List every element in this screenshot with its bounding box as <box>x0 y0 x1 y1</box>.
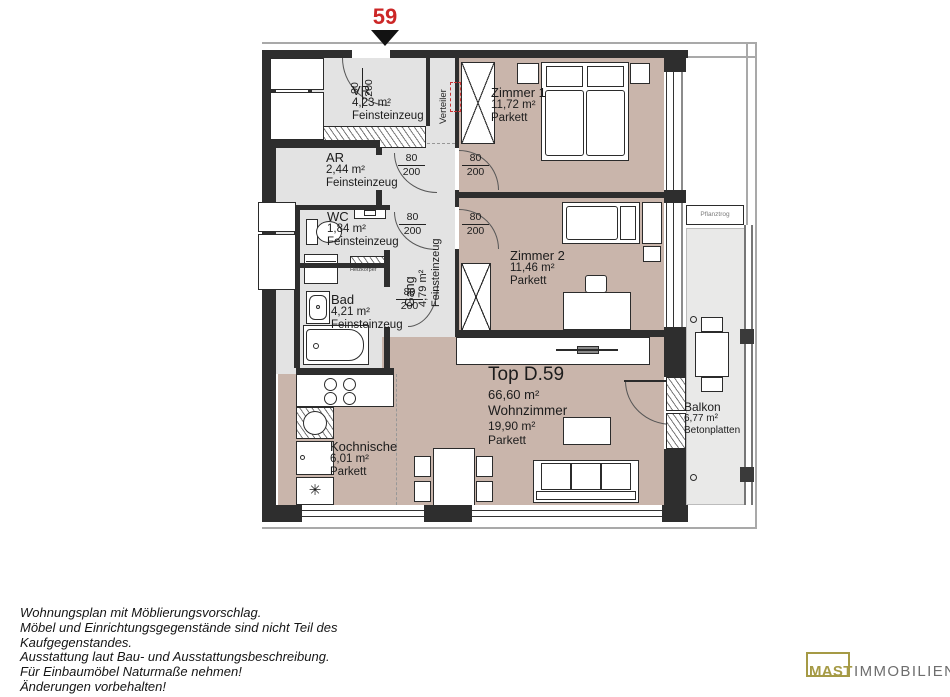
door-height: 200 <box>396 299 423 313</box>
room-area: 19,90 m² <box>488 419 567 433</box>
desk <box>563 292 631 330</box>
door-dim-wc: 80 200 <box>399 211 426 237</box>
sofa-cushion <box>601 463 631 490</box>
cooktop-burner <box>343 392 356 405</box>
door-height: 200 <box>399 224 426 238</box>
shaft-box <box>270 58 324 90</box>
room-floor: Parkett <box>510 275 565 288</box>
floorplan-canvas: 59 <box>0 0 950 697</box>
room-area: 4,21 m² <box>331 306 403 319</box>
washing-machine <box>304 254 338 284</box>
door-height: 200 <box>398 165 425 179</box>
room-floor: Parkett <box>488 433 567 447</box>
cooktop-burner <box>324 392 337 405</box>
wall <box>296 368 394 374</box>
wardrobe <box>461 263 491 331</box>
window-wohnzimmer-left <box>302 510 424 517</box>
window-outer-line <box>681 203 683 327</box>
logo-secondary-text: IMMOBILIEN <box>854 663 950 680</box>
room-name: Bad <box>331 293 403 306</box>
balcony-drain <box>690 474 697 481</box>
door-width: 90 <box>349 68 362 108</box>
balcony-door-threshold <box>666 377 686 411</box>
facade-line <box>686 56 756 58</box>
facade-line <box>262 42 756 44</box>
label-heizkoerper: Heizkörper <box>350 267 377 273</box>
unit-top-label: Top D.59 <box>488 363 567 386</box>
freezer-symbol: ✳ <box>309 482 322 499</box>
room-floor: Feinsteinzeug <box>352 110 424 123</box>
wall <box>390 50 688 58</box>
sink-basin <box>303 411 327 435</box>
washing-machine-line <box>306 261 336 262</box>
sofa-cushion <box>571 463 601 490</box>
fridge-handle <box>300 455 305 460</box>
room-name: Zimmer 1 <box>491 86 546 99</box>
shaft-box <box>270 92 324 140</box>
label-ar: AR 2,44 m² Feinsteinzeug <box>326 151 398 190</box>
balcony-table <box>695 332 729 377</box>
railing-line <box>744 225 746 505</box>
wardrobe <box>461 62 495 144</box>
wall <box>455 249 459 337</box>
label-bad: Bad 4,21 m² Feinsteinzeug <box>331 293 403 332</box>
freezer: ✳ <box>296 477 334 505</box>
door-width: 80 <box>462 152 489 165</box>
room-floor: Feinsteinzeug <box>326 177 398 190</box>
door-dim-ar: 80 200 <box>398 152 425 178</box>
room-area: 11,46 m² <box>510 262 565 275</box>
room-area: 11,72 m² <box>491 99 546 112</box>
chair <box>414 456 431 477</box>
chair <box>476 456 493 477</box>
room-floor: Parkett <box>491 112 546 125</box>
room-area: 6,77 m² <box>684 413 740 425</box>
room-name: Balkon <box>684 401 740 413</box>
chair <box>414 481 431 502</box>
door-height: 200 <box>462 165 489 179</box>
pillow <box>620 206 636 240</box>
railing-post <box>740 329 754 344</box>
pillow <box>546 66 583 87</box>
tv-line <box>556 349 618 351</box>
door-height: 200 <box>462 224 489 238</box>
label-zimmer1: Zimmer 1 11,72 m² Parkett <box>491 86 546 125</box>
desk-chair <box>585 275 607 293</box>
label-wc: WC 1,84 m² Feinsteinzeug <box>327 210 399 249</box>
footer-line: Wohnungsplan mit Möblierungsvorschlag. <box>20 606 338 621</box>
nightstand <box>630 63 650 84</box>
footer-line: Änderungen vorbehalten! <box>20 680 338 695</box>
balcony-chair <box>701 377 723 392</box>
wall <box>384 327 390 368</box>
wall <box>424 505 472 522</box>
label-zimmer2: Zimmer 2 11,46 m² Parkett <box>510 249 565 288</box>
entrance-arrow-icon <box>371 30 399 46</box>
room-area: 6,01 m² <box>330 453 397 466</box>
label-wohnzimmer: Top D.59 66,60 m² Wohnzimmer 19,90 m² Pa… <box>488 363 567 447</box>
room-floor: Feinsteinzeug <box>331 319 403 332</box>
room-name: WC <box>327 210 399 223</box>
label-verteiler: Verteiler <box>438 74 449 124</box>
sofa-backrest <box>536 491 636 500</box>
sofa-cushion <box>541 463 571 490</box>
window-zimmer1 <box>666 72 674 190</box>
room-floor: Parkett <box>330 466 397 479</box>
unit-total-area: 66,60 m² <box>488 386 567 403</box>
facade-line <box>262 527 757 529</box>
wall <box>662 505 688 522</box>
railing-line <box>751 225 753 505</box>
door-dim-zimmer2: 80 200 <box>462 211 489 237</box>
window-zimmer2 <box>666 203 674 327</box>
balcony-door-threshold <box>666 413 686 449</box>
cooktop-burner <box>324 378 337 391</box>
nightstand <box>517 63 539 84</box>
shelf <box>642 202 662 244</box>
facade-line <box>746 42 748 225</box>
window-outer-line <box>681 72 683 190</box>
door-dim-bad: 80 200 <box>396 286 423 312</box>
footer-line: Für Einbaumöbel Naturmaße nehmen! <box>20 665 338 680</box>
label-kochnische: Kochnische 6,01 m² Parkett <box>330 440 397 479</box>
footer-line: Ausstattung laut Bau- und Ausstattungsbe… <box>20 650 338 665</box>
railing-post <box>740 467 754 482</box>
door-height: 200 <box>362 68 376 108</box>
logo-primary-text: MAST <box>809 663 853 680</box>
wall <box>384 250 390 263</box>
wall <box>262 50 352 58</box>
room-floor: Feinsteinzeug <box>430 212 443 307</box>
room-name: Wohnzimmer <box>488 403 567 419</box>
unit-number-marker: 59 <box>368 4 402 30</box>
wall <box>664 449 686 505</box>
tv-sideboard <box>456 337 650 365</box>
wall <box>664 58 686 72</box>
room-area: 2,44 m² <box>326 164 398 177</box>
door-width: 80 <box>396 286 423 299</box>
facade-line <box>755 42 757 529</box>
side-table <box>643 246 661 262</box>
label-balkon: Balkon 6,77 m² Betonplatten <box>684 401 740 437</box>
wall <box>262 505 302 522</box>
coffee-table <box>563 417 611 445</box>
cooktop-burner <box>343 378 356 391</box>
balcony-drain <box>690 316 697 323</box>
mattress <box>545 90 584 156</box>
door-leaf-balkon <box>624 380 672 382</box>
footer-line: Kaufgegenstandes. <box>20 636 338 651</box>
door-dim-entrance: 90 200 <box>349 68 375 108</box>
duct-box <box>258 202 296 232</box>
room-name: Kochnische <box>330 440 397 453</box>
dining-table <box>433 448 475 510</box>
washbasin-drain <box>316 305 320 309</box>
wall <box>276 140 380 148</box>
room-floor: Betonplatten <box>684 425 740 437</box>
wall <box>426 58 430 126</box>
pflanztrog-label: Pflanztrog <box>687 206 743 224</box>
room-name: Zimmer 2 <box>510 249 565 262</box>
door-width: 80 <box>398 152 425 165</box>
pflanztrog-box: Pflanztrog <box>686 205 744 225</box>
door-dim-zimmer1: 80 200 <box>462 152 489 178</box>
pillow <box>587 66 624 87</box>
wall <box>384 268 390 287</box>
mattress <box>586 90 625 156</box>
door-width: 80 <box>462 211 489 224</box>
verteiler-cabinet <box>450 82 461 112</box>
wall <box>455 330 668 337</box>
wall <box>376 190 382 205</box>
bathtub-drain <box>313 343 319 349</box>
footer-line: Möbel und Einrichtungsgegenstände sind n… <box>20 621 338 636</box>
balcony-chair <box>701 317 723 332</box>
room-name: AR <box>326 151 398 164</box>
room-floor: Feinsteinzeug <box>327 236 399 249</box>
footer-disclaimer: Wohnungsplan mit Möblierungsvorschlag. M… <box>20 606 338 695</box>
duct-box <box>258 234 296 290</box>
chair <box>476 481 493 502</box>
door-width: 80 <box>399 211 426 224</box>
window-wohnzimmer-right <box>472 510 662 517</box>
room-area: 1,84 m² <box>327 223 399 236</box>
mattress <box>566 206 618 240</box>
wall <box>459 192 668 198</box>
